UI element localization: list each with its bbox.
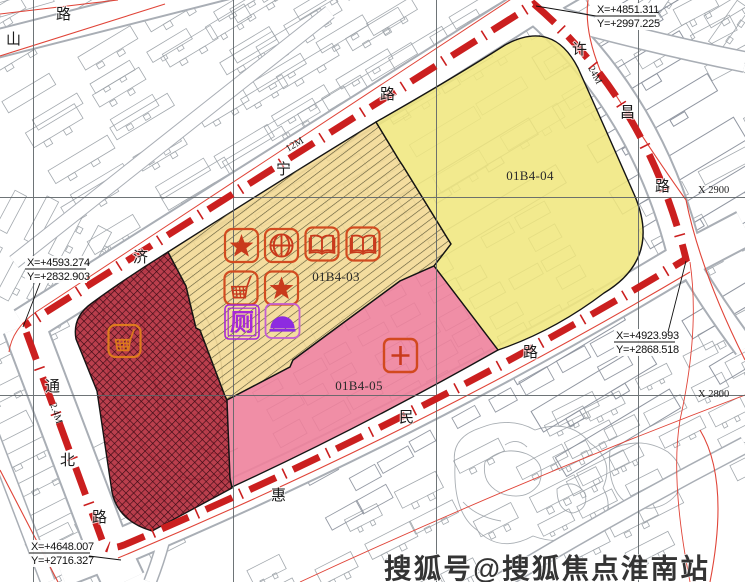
svg-text:X=+4593.274: X=+4593.274 <box>27 257 90 269</box>
svg-text:X=+4923.993: X=+4923.993 <box>616 330 679 342</box>
svg-text:01B4-03: 01B4-03 <box>312 269 360 284</box>
svg-text:昌: 昌 <box>620 105 635 121</box>
svg-text:路: 路 <box>380 86 395 103</box>
svg-text:Y=+2868.518: Y=+2868.518 <box>616 344 679 356</box>
svg-text:路: 路 <box>655 178 670 195</box>
svg-text:Y=+2997.225: Y=+2997.225 <box>597 18 660 30</box>
svg-text:路: 路 <box>523 344 538 361</box>
svg-text:济: 济 <box>133 249 148 266</box>
svg-text:X=+4851.311: X=+4851.311 <box>597 4 659 16</box>
svg-text:山: 山 <box>6 31 21 48</box>
svg-text:路: 路 <box>92 509 107 526</box>
svg-text:惠: 惠 <box>271 487 286 504</box>
svg-text:Y=+2716.327: Y=+2716.327 <box>31 555 94 567</box>
svg-text:01B4-04: 01B4-04 <box>506 168 554 183</box>
svg-text:北: 北 <box>60 452 75 469</box>
svg-text:X 2800: X 2800 <box>698 389 729 400</box>
svg-text:01B4-05: 01B4-05 <box>335 378 383 393</box>
svg-text:X 2900: X 2900 <box>698 185 729 196</box>
svg-text:路: 路 <box>56 6 71 23</box>
svg-text:民: 民 <box>399 410 414 426</box>
svg-text:厕: 厕 <box>230 311 254 337</box>
svg-text:通: 通 <box>45 378 60 395</box>
svg-text:Y=+2832.903: Y=+2832.903 <box>27 271 90 283</box>
svg-text:搜狐号@搜狐焦点淮南站: 搜狐号@搜狐焦点淮南站 <box>384 553 710 582</box>
svg-text:X=+4648.007: X=+4648.007 <box>31 541 94 553</box>
svg-text:宁: 宁 <box>276 161 291 178</box>
svg-text:许: 许 <box>572 41 587 58</box>
